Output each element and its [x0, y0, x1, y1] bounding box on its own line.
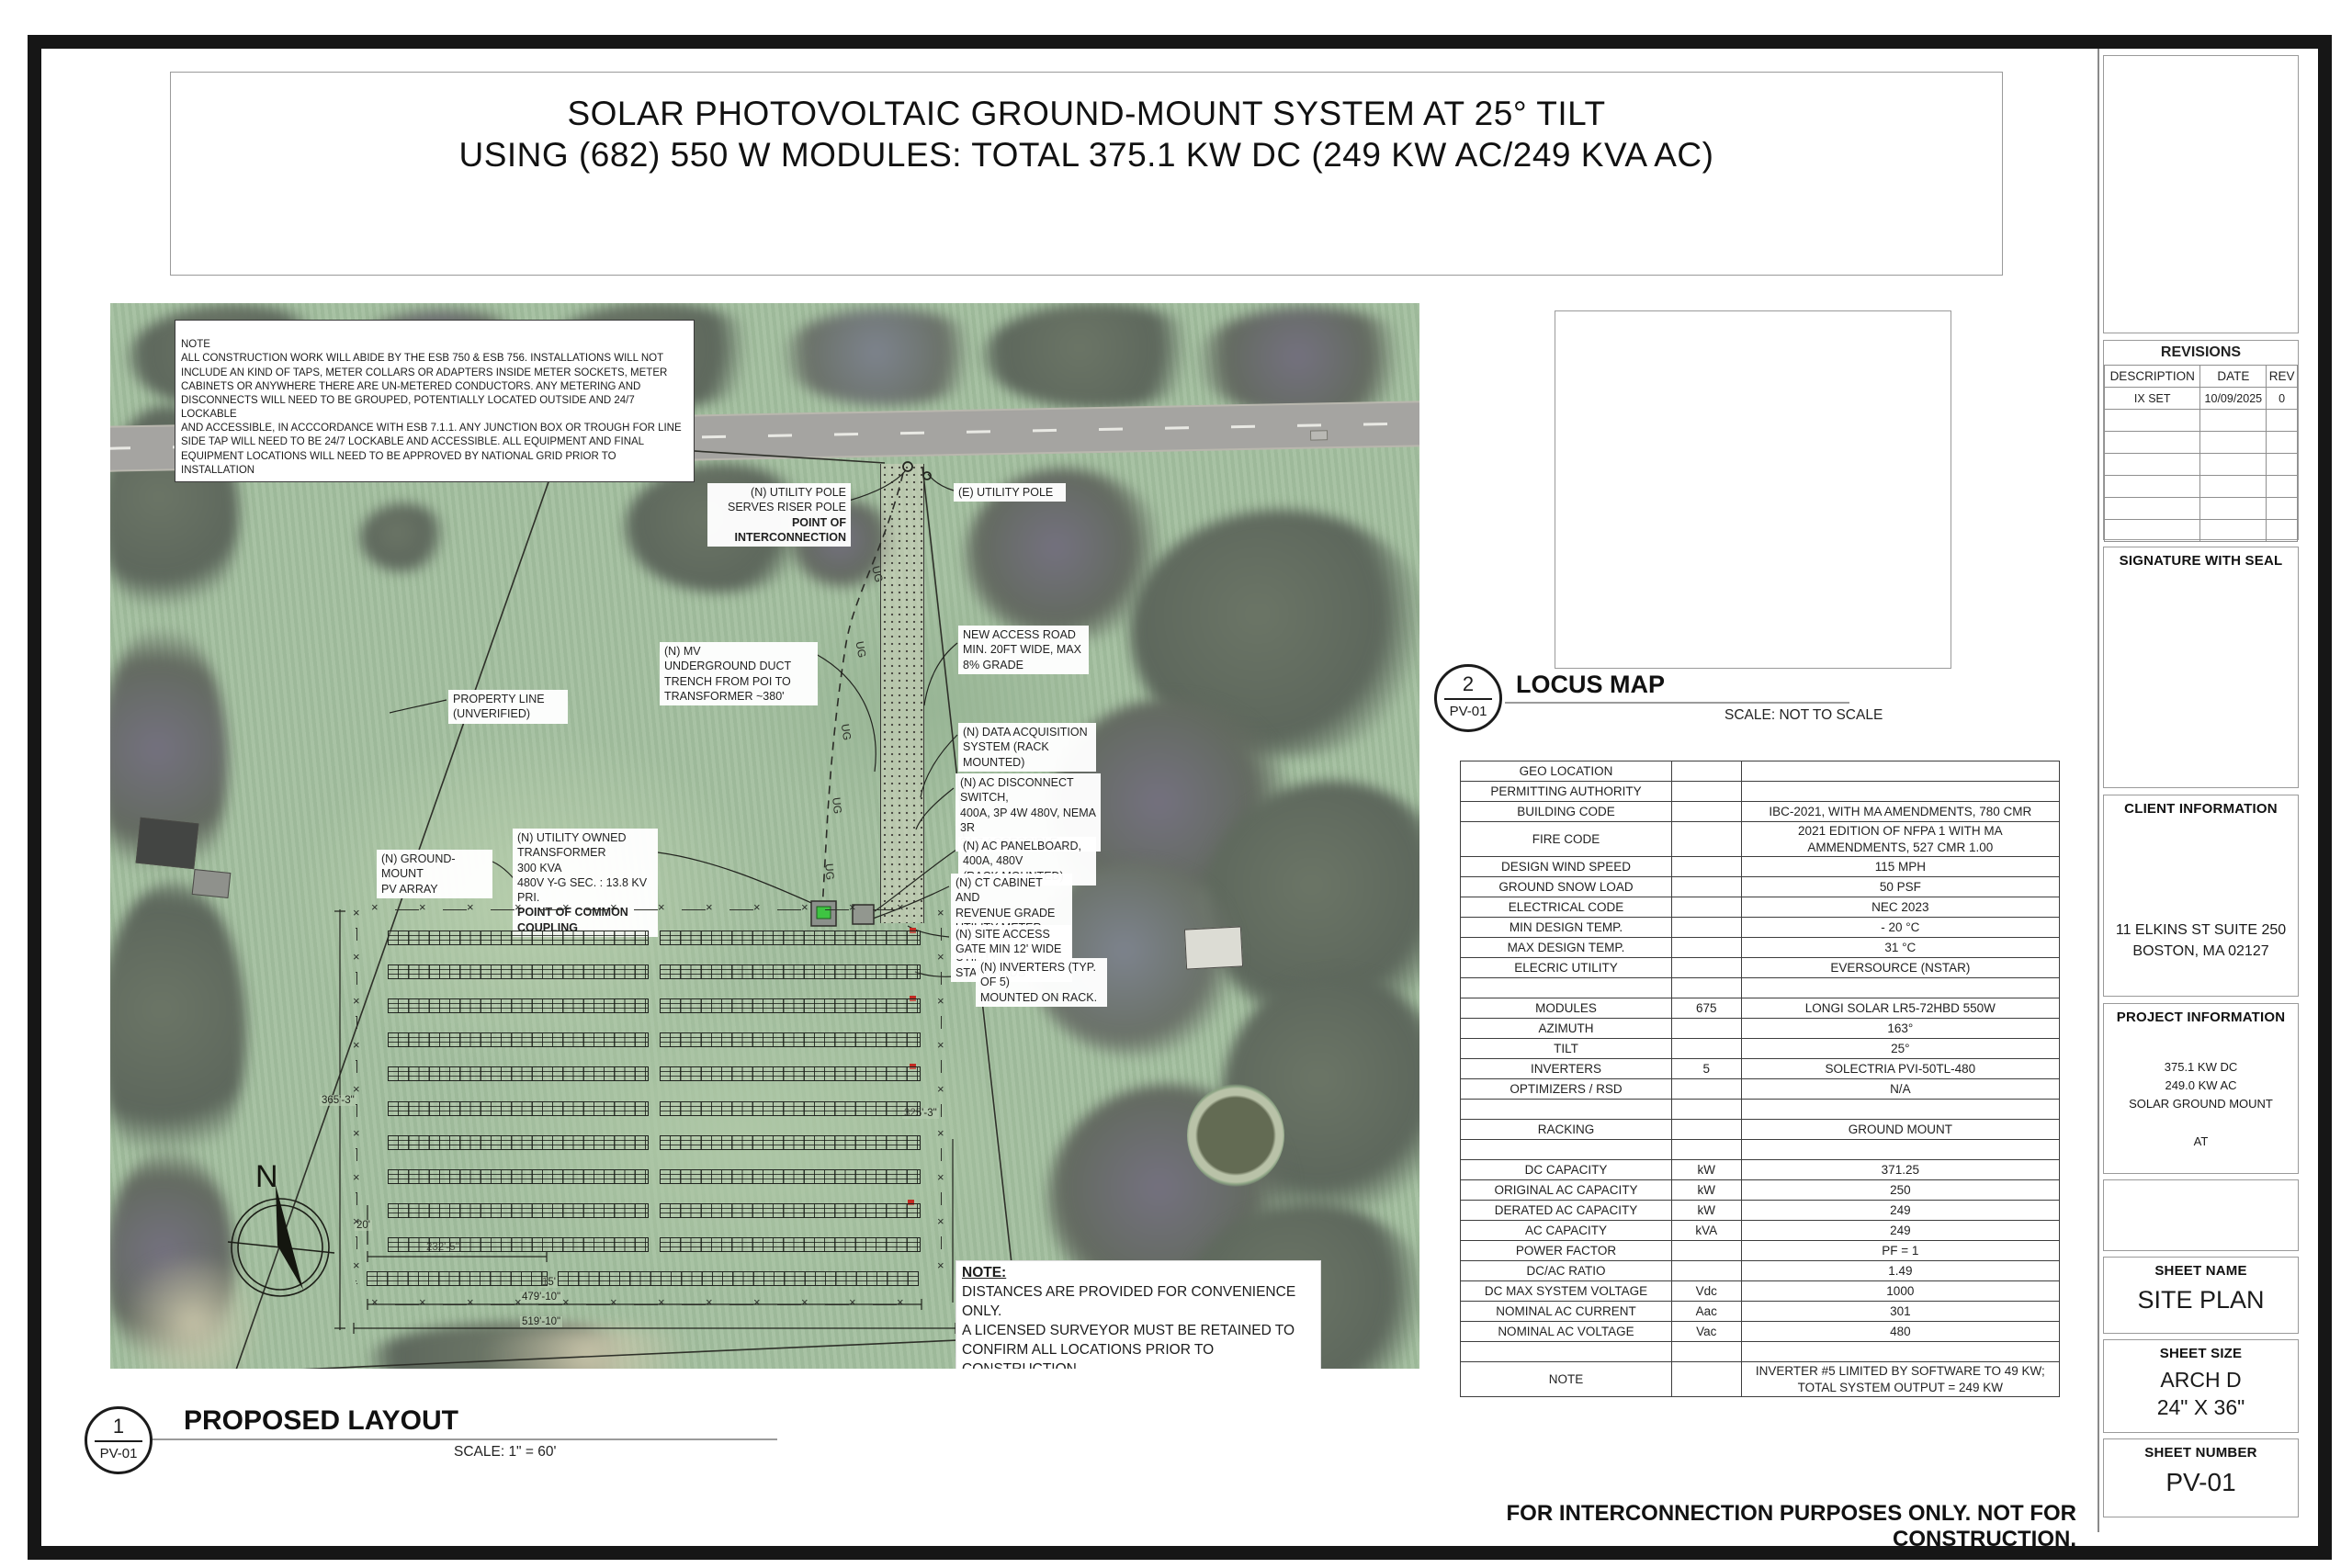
spec-row: ORIGINAL AC CAPACITYkW250 — [1461, 1180, 2060, 1201]
spec-row: PERMITTING AUTHORITY — [1461, 782, 2060, 802]
sheet-name-title: SHEET NAME — [2108, 1263, 2294, 1279]
spec-row: ELECTRICAL CODENEC 2023 — [1461, 897, 2060, 918]
sheet-size-box: SHEET SIZE ARCH D 24" X 36" — [2103, 1339, 2299, 1433]
spec-row: NOMINAL AC VOLTAGEVac480 — [1461, 1322, 2060, 1342]
spec-spacer-row — [1461, 1140, 2060, 1160]
sheet-number-value: PV-01 — [2104, 1468, 2298, 1497]
sheet-number-title: SHEET NUMBER — [2108, 1445, 2294, 1461]
spec-row: RACKINGGROUND MOUNT — [1461, 1120, 2060, 1140]
project-info-line: 375.1 KW DC — [2104, 1058, 2298, 1077]
title-block: SOLAR PHOTOVOLTAIC GROUND-MOUNT SYSTEM A… — [170, 72, 2003, 276]
project-info-line — [2104, 1113, 2298, 1132]
spec-row: OPTIMIZERS / RSDN/A — [1461, 1079, 2060, 1100]
revisions-box: REVISIONS DESCRIPTIONDATEREVIX SET10/09/… — [2103, 340, 2299, 540]
spec-row: AZIMUTH163° — [1461, 1019, 2060, 1039]
spec-spacer-row — [1461, 978, 2060, 998]
spec-row: AC CAPACITYkVA249 — [1461, 1221, 2060, 1241]
locus-map-rule — [1505, 702, 1849, 704]
spec-spacer-row — [1461, 1100, 2060, 1120]
spec-row: INVERTERS5SOLECTRIA PVI-50TL-480 — [1461, 1059, 2060, 1079]
locus-map-box — [1555, 310, 1951, 669]
view-sheet: PV-01 — [87, 1442, 150, 1466]
project-info-line: 249.0 KW AC — [2104, 1077, 2298, 1095]
sheet-title-line2: USING (682) 550 W MODULES: TOTAL 375.1 K… — [171, 134, 2002, 175]
sheet-size-title: SHEET SIZE — [2108, 1346, 2294, 1361]
signature-title: SIGNATURE WITH SEAL — [2108, 553, 2294, 569]
spare-box — [2103, 1179, 2299, 1251]
revision-row — [2105, 454, 2298, 476]
spec-row: DERATED AC CAPACITYkW249 — [1461, 1201, 2060, 1221]
spec-row: GROUND SNOW LOAD50 PSF — [1461, 877, 2060, 897]
client-address-line1: 11 ELKINS ST SUITE 250 — [2104, 919, 2298, 941]
spec-row: DC MAX SYSTEM VOLTAGEVdc1000 — [1461, 1281, 2060, 1302]
sheet-number-box: SHEET NUMBER PV-01 — [2103, 1438, 2299, 1517]
sheet-size-line1: ARCH D — [2104, 1367, 2298, 1394]
spec-row: BUILDING CODEIBC-2021, WITH MA AMENDMENT… — [1461, 802, 2060, 822]
revision-row — [2105, 476, 2298, 498]
revision-row — [2105, 498, 2298, 520]
sheet-title-line1: SOLAR PHOTOVOLTAIC GROUND-MOUNT SYSTEM A… — [171, 93, 2002, 134]
proposed-layout-scale: SCALE: 1" = 60' — [454, 1444, 556, 1461]
revision-row — [2105, 520, 2298, 542]
revision-row: IX SET10/09/20250 — [2105, 388, 2298, 410]
spec-row: DC CAPACITYkW371.25 — [1461, 1160, 2060, 1180]
revisions-title: REVISIONS — [2105, 341, 2298, 366]
signature-box: SIGNATURE WITH SEAL — [2103, 547, 2299, 788]
proposed-layout-title: PROPOSED LAYOUT — [184, 1405, 458, 1437]
revisions-table: REVISIONS DESCRIPTIONDATEREVIX SET10/09/… — [2104, 341, 2298, 542]
logo-box — [2103, 55, 2299, 333]
spec-row: DC/AC RATIO1.49 — [1461, 1261, 2060, 1281]
spec-row: MIN DESIGN TEMP.- 20 °C — [1461, 918, 2060, 938]
locus-map-ref: 2 PV-01 — [1434, 664, 1502, 732]
sheet-page: NOTE ALL CONSTRUCTION WORK WILL ABIDE BY… — [0, 0, 2352, 1568]
client-info-title: CLIENT INFORMATION — [2108, 801, 2294, 817]
spec-row: MAX DESIGN TEMP.31 °C — [1461, 938, 2060, 958]
proposed-layout-ref: 1 PV-01 — [85, 1406, 153, 1474]
spec-row: DESIGN WIND SPEED115 MPH — [1461, 857, 2060, 877]
project-info-box: PROJECT INFORMATION 375.1 KW DC249.0 KW … — [2103, 1003, 2299, 1174]
project-info-line: AT — [2104, 1133, 2298, 1151]
revisions-col-header: DATE — [2200, 366, 2267, 388]
client-address-line2: BOSTON, MA 02127 — [2104, 941, 2298, 962]
sheet-name-box: SHEET NAME SITE PLAN — [2103, 1257, 2299, 1334]
client-info-box: CLIENT INFORMATION 11 ELKINS ST SUITE 25… — [2103, 795, 2299, 997]
spec-row: GEO LOCATION — [1461, 761, 2060, 782]
revision-row — [2105, 432, 2298, 454]
revisions-col-header: REV — [2267, 366, 2298, 388]
sheet-size-line2: 24" X 36" — [2104, 1394, 2298, 1422]
revisions-col-header: DESCRIPTION — [2105, 366, 2200, 388]
spec-row: NOTEINVERTER #5 LIMITED BY SOFTWARE TO 4… — [1461, 1362, 2060, 1397]
spec-row: POWER FACTORPF = 1 — [1461, 1241, 2060, 1261]
system-spec-table: GEO LOCATIONPERMITTING AUTHORITYBUILDING… — [1460, 761, 2060, 1397]
titleblock-separator — [2098, 49, 2099, 1532]
spec-spacer-row — [1461, 1342, 2060, 1362]
spec-row: MODULES675LONGI SOLAR LR5-72HBD 550W — [1461, 998, 2060, 1019]
view-number: 1 — [95, 1413, 142, 1442]
project-info-title: PROJECT INFORMATION — [2108, 1010, 2294, 1025]
locus-map-title: LOCUS MAP — [1516, 671, 1665, 699]
footer-disclaimer: FOR INTERCONNECTION PURPOSES ONLY. NOT F… — [1378, 1501, 2076, 1552]
spec-row: FIRE CODE2021 EDITION OF NFPA 1 WITH MA … — [1461, 822, 2060, 857]
revision-row — [2105, 410, 2298, 432]
locus-map-scale: SCALE: NOT TO SCALE — [1724, 707, 1883, 724]
view-sheet: PV-01 — [1437, 700, 1499, 724]
spec-row: NOMINAL AC CURRENTAac301 — [1461, 1302, 2060, 1322]
view-number: 2 — [1444, 671, 1492, 700]
project-info-line: SOLAR GROUND MOUNT — [2104, 1095, 2298, 1113]
sheet-name-value: SITE PLAN — [2104, 1286, 2298, 1314]
proposed-layout-rule — [153, 1438, 777, 1440]
spec-row: ELECRIC UTILITYEVERSOURCE (NSTAR) — [1461, 958, 2060, 978]
spec-row: TILT25° — [1461, 1039, 2060, 1059]
